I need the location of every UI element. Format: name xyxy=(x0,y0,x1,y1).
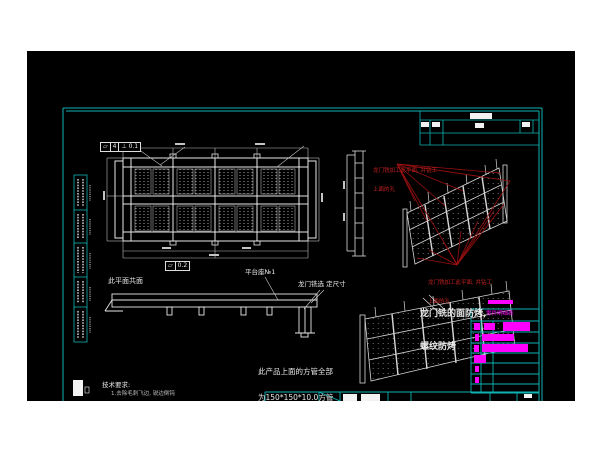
plan-view xyxy=(103,143,323,258)
tube-note-line2: 为150*150*10.0方管 xyxy=(258,394,333,403)
corner-table xyxy=(420,111,539,145)
red-note-2-line1: 龙门铣加工此平面, 并钻工 xyxy=(428,280,492,286)
square-tube-note: 此产品上面的方管全部 为150*150*10.0方管 xyxy=(258,351,333,420)
face-note-line1: 龙门铣的面防烤, xyxy=(420,309,486,320)
title-block-filled-cells xyxy=(343,394,532,401)
elevation-view xyxy=(105,277,324,337)
side-view xyxy=(343,151,366,256)
tech-req-item-1: 1.去除毛刺飞边, 锐边倒钝 xyxy=(111,391,175,397)
bom-table-header: 零件明细表 xyxy=(486,311,514,317)
face-note-line2: 螺纹防烤 xyxy=(420,342,486,353)
gdt-symbol: ▱ xyxy=(166,262,175,270)
gdt-symbol: ▱ xyxy=(101,143,110,151)
dimension-text-marks xyxy=(103,143,323,256)
cad-viewport[interactable]: ▱4⊥ 0.1 ▱0.2 此平面共面 平台座№1 龙门铣选 定尺寸 龙门铣加工此… xyxy=(27,51,575,401)
red-note-1-line2: 上面的孔 xyxy=(373,187,437,193)
platform-label: 平台座№1 xyxy=(245,269,275,276)
tech-req-title: 技术要求: xyxy=(102,382,130,389)
face-protection-note: 龙门铣的面防烤, 螺纹防烤 xyxy=(420,287,486,375)
left-revision-strip xyxy=(73,175,90,396)
cad-screenshot-page: ▱4⊥ 0.1 ▱0.2 此平面共面 平台座№1 龙门铣选 定尺寸 龙门铣加工此… xyxy=(0,0,600,450)
corner-table-filled-cells xyxy=(421,113,530,128)
red-note-1-line1: 龙门铣加工此平面, 并钻工 xyxy=(373,168,437,174)
gdt-frame-top: ▱4⊥ 0.1 xyxy=(100,142,141,152)
mill-size-note: 龙门铣选 定尺寸 xyxy=(298,281,346,288)
drawing-linework xyxy=(27,51,575,401)
red-machining-note-1: 龙门铣加工此平面, 并钻工 上面的孔 xyxy=(373,155,437,206)
gdt-frame-bottom: ▱0.2 xyxy=(165,261,190,271)
tube-note-line1: 此产品上面的方管全部 xyxy=(258,368,333,377)
coplanar-note: 此平面共面 xyxy=(108,277,143,285)
left-strip-white-block xyxy=(73,380,83,396)
